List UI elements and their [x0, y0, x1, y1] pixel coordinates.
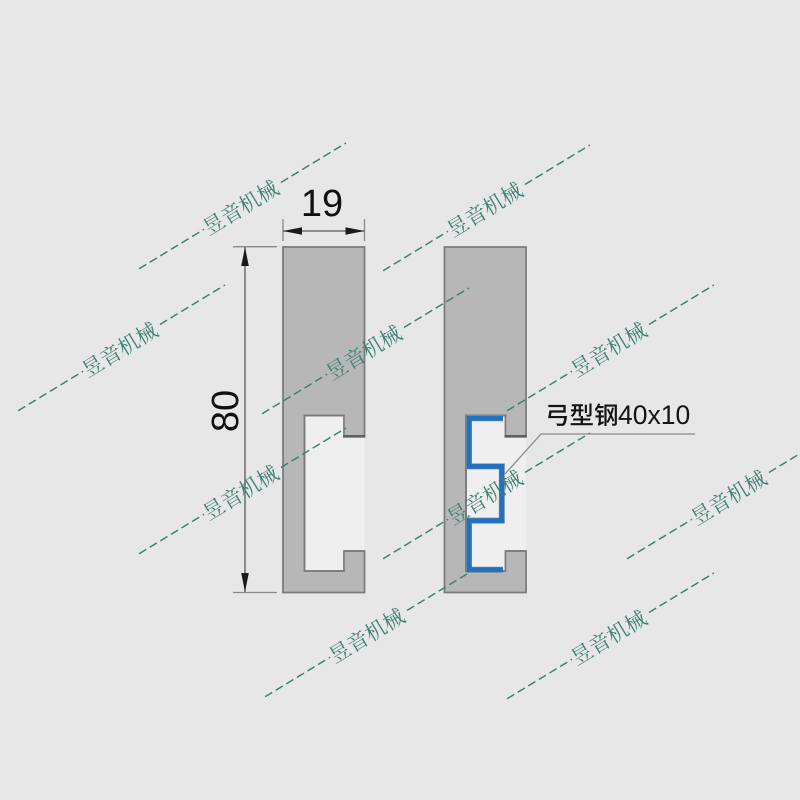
svg-text:80: 80	[205, 390, 247, 432]
svg-text:40x10: 40x10	[618, 400, 690, 430]
svg-text:19: 19	[301, 183, 343, 225]
